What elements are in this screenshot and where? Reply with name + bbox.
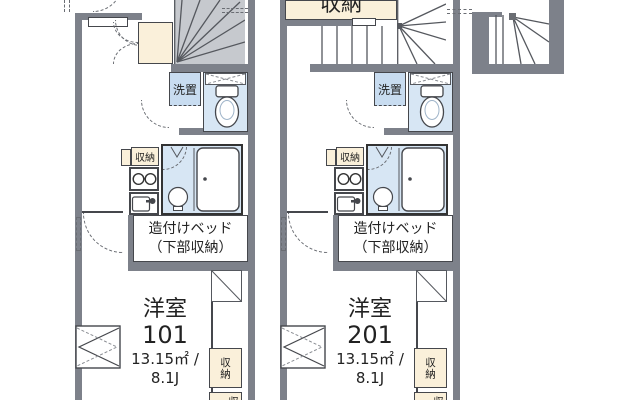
built-in-bed: 造付けベッド （下部収納） xyxy=(338,215,453,262)
closet2-label: 収納 xyxy=(226,396,241,400)
connector-dash-top xyxy=(447,9,472,10)
kitchen-storage: 収納 xyxy=(131,147,159,166)
stairs-winder-icon xyxy=(397,0,446,64)
kitchen-storage: 収納 xyxy=(336,147,364,166)
room-door-arc xyxy=(83,213,123,253)
connector-dash-bottom xyxy=(447,13,472,14)
closet-2: 収納 xyxy=(209,392,242,400)
toilet-icon xyxy=(418,85,446,129)
floor-plan-canvas: 洗置 収納 xyxy=(0,0,640,400)
diagonal-marked-space xyxy=(416,270,447,302)
stairs-icon xyxy=(174,0,245,64)
kitchen-storage-label: 収納 xyxy=(340,149,360,164)
toilet-icon xyxy=(213,85,241,129)
washer-label: 洗置 xyxy=(378,81,402,98)
stove-icon xyxy=(334,167,364,191)
closet-label: 収納 xyxy=(218,357,233,380)
stair-landing-marker xyxy=(352,18,376,26)
built-in-bed: 造付けベッド （下部収納） xyxy=(133,215,248,262)
kitchen-side-storage xyxy=(326,149,336,166)
overhead-cabinet-icon xyxy=(410,73,451,85)
washer-space: 洗置 xyxy=(169,72,201,106)
stairs-treads-icon xyxy=(310,26,397,64)
wall-right xyxy=(248,0,255,400)
closet-door-arc-bottom xyxy=(113,43,138,64)
wall-under-stairs xyxy=(310,64,453,72)
bed-label-line2: （下部収納） xyxy=(134,239,247,258)
wall-under-stairs xyxy=(171,64,248,72)
outdoor-staircase-icon xyxy=(472,0,564,74)
loft-storage-label: 収納 xyxy=(285,0,397,18)
corridor-door-arc xyxy=(141,100,169,128)
closet: 収納 xyxy=(414,348,447,388)
washbasin-icon xyxy=(169,188,188,207)
closet-label: 収納 xyxy=(423,357,438,380)
exterior-dash-3 xyxy=(222,8,248,9)
exterior-dash-4 xyxy=(222,12,248,13)
kitchen-side-storage xyxy=(121,149,131,166)
bed-label-line2: （下部収納） xyxy=(339,239,452,258)
stove-icon xyxy=(129,167,159,191)
exterior-dash-2 xyxy=(69,0,70,12)
room-door-arc xyxy=(288,213,328,253)
closet: 収納 xyxy=(209,348,242,388)
closet-door-arc-top xyxy=(113,22,138,43)
sink-icon xyxy=(334,192,364,215)
upper-closet xyxy=(138,22,173,64)
unit-101: 洗置 収納 xyxy=(75,0,255,400)
overhead-cabinet-icon xyxy=(205,73,246,85)
washer-space: 洗置 xyxy=(374,72,406,106)
bay-window-icon xyxy=(75,325,121,369)
room-door-leaf xyxy=(76,217,81,251)
kitchen-storage-label: 収納 xyxy=(135,149,155,164)
closet2-label: 収納 xyxy=(431,396,446,400)
room-door-leaf xyxy=(281,217,286,251)
entrance-door-outside-arc xyxy=(93,0,123,12)
diagonal-marked-space xyxy=(211,270,242,302)
washbasin-icon xyxy=(374,188,393,207)
exterior-dash-1 xyxy=(64,0,65,12)
sink-icon xyxy=(129,192,159,215)
bay-window-icon xyxy=(280,325,326,369)
unit-201: 収納 洗置 xyxy=(280,0,460,400)
bed-label-line1: 造付けベッド xyxy=(339,220,452,239)
washer-label: 洗置 xyxy=(173,81,197,98)
closet-2: 収納 xyxy=(414,392,447,400)
wall-right xyxy=(453,0,460,400)
corridor-door-arc xyxy=(346,100,374,128)
bed-label-line1: 造付けベッド xyxy=(134,220,247,239)
